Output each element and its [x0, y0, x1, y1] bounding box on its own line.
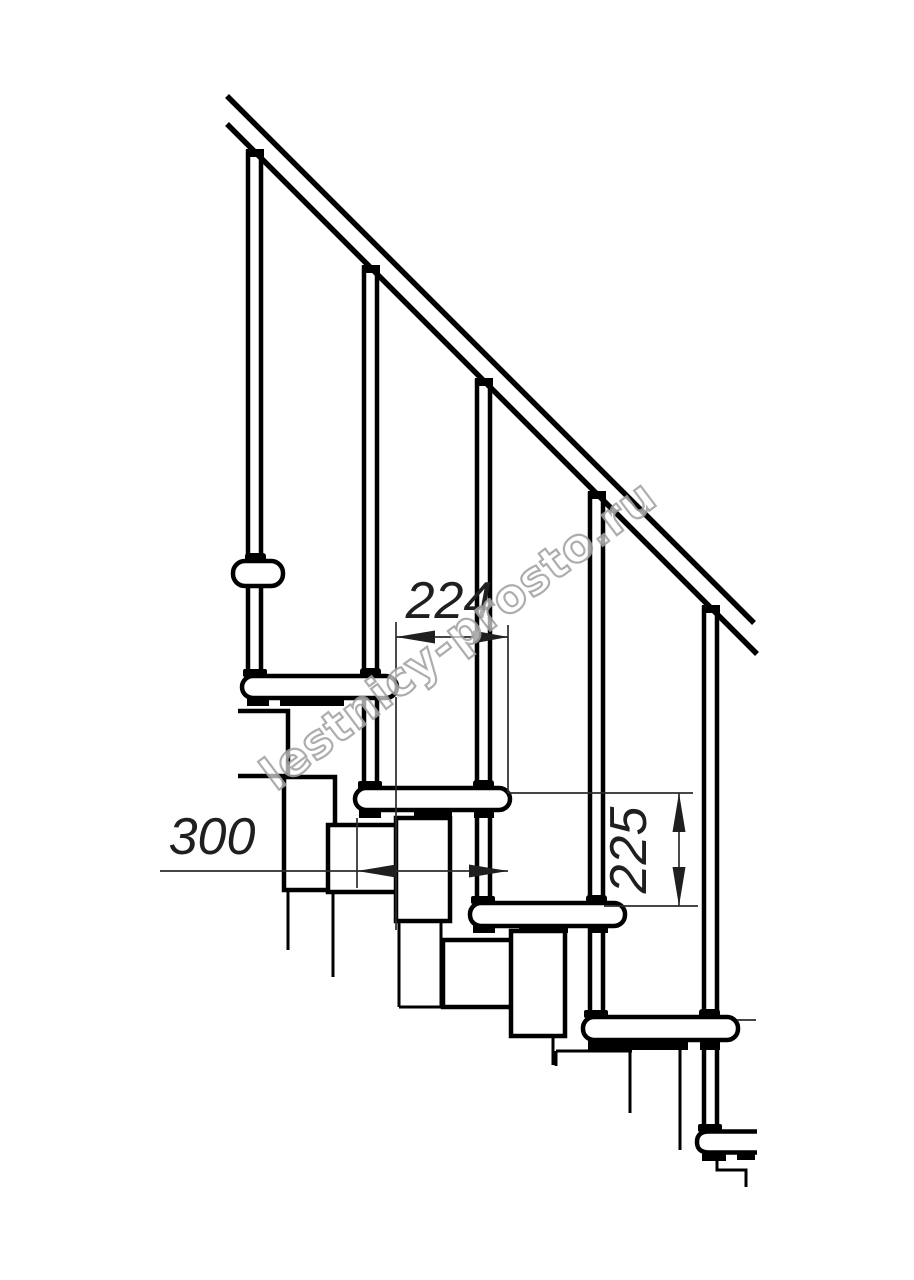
dimension-225-label: 225	[600, 806, 658, 895]
baluster-1-foot	[243, 669, 267, 677]
baluster-collar	[699, 1009, 720, 1018]
baluster-1	[248, 152, 261, 676]
staircase-technical-drawing: 224 300 225 lestnicy-prosto.ru	[0, 0, 914, 1280]
baluster-3-mount	[475, 378, 493, 386]
under-tread-bar-4	[588, 1040, 688, 1050]
tread-3	[470, 903, 625, 926]
baluster-4-foot	[584, 1010, 608, 1018]
baluster-5-mount	[702, 605, 720, 613]
baluster-collar	[586, 895, 607, 904]
baluster-5	[704, 608, 717, 1131]
baluster-3-foot	[471, 896, 495, 904]
under-tread-bar-5	[702, 1152, 726, 1161]
baluster-5-foot	[698, 1124, 722, 1132]
under-tab	[247, 698, 269, 706]
baluster-2-mount	[362, 265, 380, 273]
module-plate-3	[511, 931, 565, 1036]
under-tab	[359, 810, 381, 818]
under-tab	[700, 1042, 720, 1050]
dimension-300-label: 300	[169, 808, 256, 866]
under-tread-bar-5b	[737, 1152, 755, 1160]
tread-2	[355, 788, 510, 810]
arrowhead-up	[673, 793, 686, 832]
drawing-canvas: 224 300 225 lestnicy-prosto.ru	[0, 0, 914, 1280]
upper-flight-tread	[233, 561, 283, 586]
under-tab	[474, 810, 494, 818]
baluster-2-foot	[358, 781, 382, 789]
baluster-4	[590, 494, 603, 1017]
module-box-3	[443, 940, 518, 1007]
module-box-1	[328, 825, 403, 892]
under-tread-bar-2	[414, 809, 452, 818]
baluster-collar	[473, 780, 494, 789]
under-tab	[473, 925, 495, 933]
baluster-collar	[245, 553, 266, 562]
module-tail-step	[717, 1161, 746, 1187]
tread-5-clipped	[697, 1132, 757, 1153]
tread-4	[583, 1017, 738, 1040]
under-tab	[588, 925, 608, 933]
arrowhead-down	[673, 867, 686, 906]
under-tread-bar-3	[519, 924, 568, 933]
module-plate-2	[396, 818, 450, 921]
baluster-1-mount	[246, 149, 264, 157]
